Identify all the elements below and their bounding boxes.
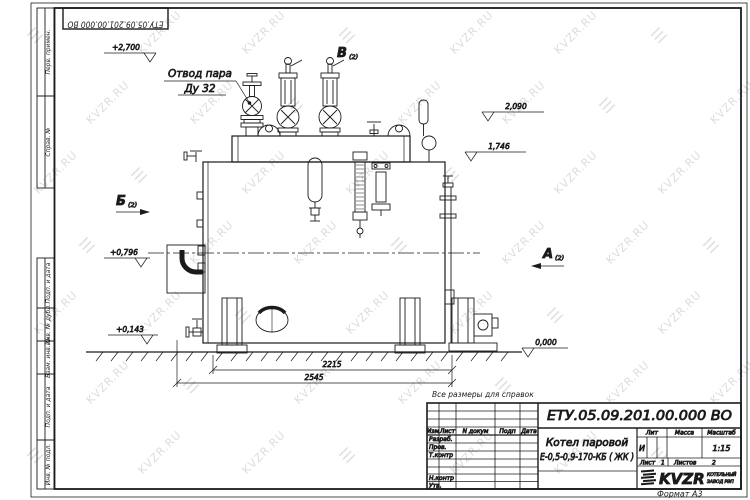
margin-columns: Перв. примен. Справ. № Подп. и дата Инв.… — [37, 8, 54, 489]
steam-outlet-valve — [241, 74, 263, 137]
tb-row-tkontr: Т.контр — [429, 452, 453, 459]
view-a-letter: А — [542, 247, 553, 262]
corner-stamp-doc-number: ЕТУ.05.09.201.00.000 ВО — [68, 19, 164, 29]
tb-name-line2: Е-0,5-0,9-170-КБ ( ЖК ) — [540, 452, 634, 463]
boiler-body — [203, 162, 445, 343]
view-a-sheet-ref: (2) — [555, 254, 564, 262]
lifting-lug-right — [388, 125, 410, 136]
margin-cell-sprav-n: Справ. № — [45, 127, 52, 156]
kvzr-logo-sub1: КОТЕЛЬНЫЙ — [707, 471, 737, 478]
tb-sheet-label: Лист — [639, 460, 656, 467]
boiler-drawing-svg: Перв. примен. Справ. № Подп. и дата Инв.… — [0, 0, 750, 500]
level-2700-label: +2,700 — [112, 43, 140, 52]
steam-drum — [232, 136, 410, 162]
drawing-sheet: ☰KVZR.RUKVZR.RU☰KVZR.RUKVZR.RU☰KVZR.RUKV… — [0, 0, 750, 500]
callout-line2: Ду 32 — [183, 83, 215, 95]
tb-hdr-data: Дата — [520, 428, 537, 435]
tb-lit-header: Лит — [645, 430, 658, 437]
level-0000-label: 0,000 — [535, 338, 557, 347]
view-b-letter: Б — [116, 194, 126, 209]
tb-sheets-label: Листов — [673, 460, 697, 467]
tb-sheet-value: 1 — [661, 460, 665, 467]
level-0796-label: +0,796 — [110, 248, 138, 257]
drum-vent-valve — [367, 122, 381, 136]
level-mark-0000: 0,000 — [522, 338, 568, 357]
tb-scale-value: 1:15 — [713, 444, 731, 453]
tb-hdr-podp: Подп — [499, 428, 515, 435]
margin-cell-inv-podl: Инв. № подл. — [45, 444, 52, 485]
level-mark-1746: 1,746 — [465, 142, 526, 161]
tb-hdr-list: Лист — [439, 428, 456, 435]
feed-elbow-box — [167, 245, 205, 293]
tb-name-line1: Котел паровой — [546, 437, 629, 449]
level-0143-label: +0,143 — [116, 325, 144, 334]
view-b-sheet-ref: (2) — [128, 201, 137, 209]
margin-cell-podp-data-1: Подп. и дата — [45, 262, 52, 303]
margin-cell-podp-data-2: Подп. и дата — [45, 386, 52, 427]
view-label-a: А (2) — [531, 247, 564, 269]
left-fittings — [184, 151, 203, 227]
tb-row-utv: Утв. — [429, 483, 442, 490]
kvzr-logo-sub2: ЗАВОД РЭП — [707, 479, 734, 485]
kvzr-logo: KVZR КОТЕЛЬНЫЙ ЗАВОД РЭП — [641, 470, 737, 488]
dimensions: 2215 2545 — [173, 340, 456, 387]
view-v-letter: В — [337, 46, 347, 61]
tb-hdr-izm: Изм — [427, 428, 440, 435]
right-standpipe — [440, 176, 456, 343]
level-mark-0796: +0,796 — [104, 248, 150, 267]
margin-cell-perv-primen: Перв. примен. — [45, 29, 52, 74]
callout-steam-outlet: Отвод пара Ду 32 — [164, 68, 251, 104]
level-1746-label: 1,746 — [488, 142, 510, 151]
burner-unit — [445, 290, 498, 351]
boiler-assembly — [86, 58, 522, 362]
level-mark-2090: 2,090 — [482, 102, 544, 121]
reference-note: Все размеры для справок — [432, 390, 534, 399]
tb-lit-value: И — [639, 444, 645, 453]
view-v-sheet-ref: (2) — [349, 53, 358, 61]
view-label-v: В (2) — [337, 46, 358, 61]
tb-masshtab-header: Масштаб — [707, 430, 736, 437]
safety-valve-left — [277, 58, 302, 137]
view-label-b: Б (2) — [116, 194, 150, 215]
safety-valve-right — [319, 58, 344, 137]
kvzr-logo-text: KVZR — [659, 470, 705, 488]
tb-sheets-value: 2 — [712, 460, 716, 467]
tb-row-nkontr: Н.контр — [429, 475, 454, 482]
ground-hatch — [96, 352, 508, 361]
tb-massa-header: Масса — [675, 430, 694, 437]
level-2090-label: 2,090 — [505, 102, 527, 111]
tb-hdr-ndoc: N докум — [463, 428, 489, 435]
level-mark-0143: +0,143 — [108, 325, 158, 344]
blowdown-valve — [186, 319, 203, 337]
tb-row-prov: Пров. — [429, 444, 447, 451]
tb-row-razrab: Разраб. — [429, 436, 453, 443]
corner-stamp: ЕТУ.05.09.201.00.000 ВО — [63, 8, 168, 29]
tb-doc-number: ЕТУ.05.09.201.00.000 ВО — [547, 409, 732, 424]
callout-line1: Отвод пара — [168, 68, 232, 80]
manhole — [256, 307, 288, 332]
ground-line — [86, 352, 522, 361]
level-probe — [308, 158, 322, 221]
level-mark-2700: +2,700 — [104, 43, 156, 62]
level-marks: +2,700 2,090 1,746 +0,796 +0,143 — [104, 43, 568, 357]
water-gauge-glass — [353, 152, 367, 238]
margin-cell-vzam-inv: Взам. инв. № — [45, 337, 52, 378]
format-note: Формат А3 — [657, 490, 703, 499]
dim-2545: 2545 — [304, 373, 323, 382]
gauge-ticks — [356, 165, 364, 209]
water-level-column — [372, 163, 390, 216]
kvzr-spring-icon — [641, 471, 656, 485]
support-legs — [217, 298, 425, 353]
pressure-gauge — [419, 100, 436, 162]
dim-2215: 2215 — [322, 360, 341, 369]
title-block: Изм Лист N докум Подп Дата Разраб. Пров.… — [427, 403, 741, 490]
